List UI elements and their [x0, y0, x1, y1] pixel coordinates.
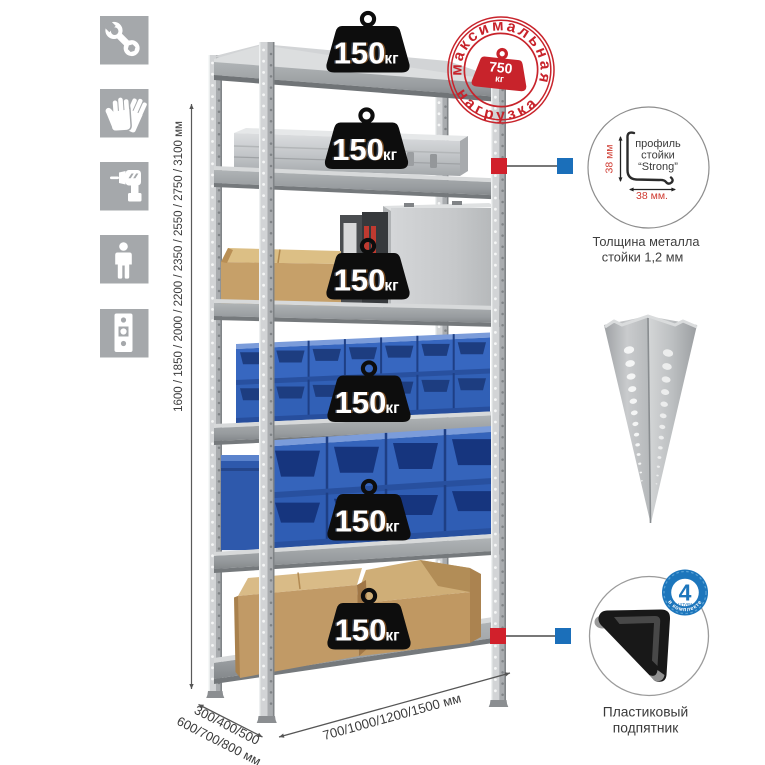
- svg-text:Толщина металла: Толщина металла: [593, 234, 701, 249]
- svg-text:кг: кг: [495, 73, 505, 85]
- svg-text:150: 150: [332, 132, 384, 167]
- svg-text:150: 150: [334, 263, 386, 298]
- svg-text:кг: кг: [384, 278, 399, 295]
- svg-text:кг: кг: [385, 400, 400, 417]
- svg-text:38 мм.: 38 мм.: [636, 190, 668, 202]
- svg-text:кг: кг: [384, 51, 399, 68]
- svg-text:Пластиковый: Пластиковый: [603, 705, 688, 720]
- svg-text:стойки 1,2 мм: стойки 1,2 мм: [602, 250, 684, 265]
- svg-text:150: 150: [335, 385, 387, 420]
- svg-text:1600 / 1850 / 2000 / 2200 / 23: 1600 / 1850 / 2000 / 2200 / 2350 / 2550 …: [173, 121, 185, 412]
- svg-text:подпятник: подпятник: [613, 721, 679, 736]
- svg-text:150: 150: [335, 504, 387, 539]
- svg-text:кг: кг: [385, 519, 400, 536]
- svg-text:профиль: профиль: [635, 138, 681, 150]
- svg-text:38 мм: 38 мм: [604, 144, 616, 173]
- svg-text:“Strong”: “Strong”: [638, 161, 678, 173]
- svg-text:150: 150: [334, 36, 386, 71]
- svg-text:кг: кг: [383, 147, 398, 164]
- svg-text:700/1000/1200/1500 мм: 700/1000/1200/1500 мм: [321, 690, 463, 743]
- svg-text:150: 150: [335, 613, 387, 648]
- svg-text:стойки: стойки: [641, 150, 675, 162]
- svg-text:кг: кг: [385, 628, 400, 645]
